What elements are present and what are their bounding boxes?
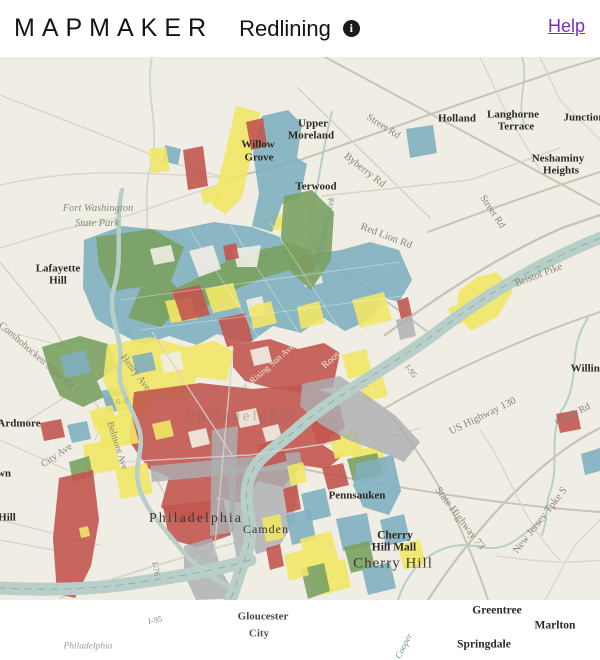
help-link[interactable]: Help [548, 16, 585, 37]
map-label: Philadelphia [63, 642, 112, 652]
map-label: Marlton [535, 620, 576, 632]
map-label: Greentree [472, 605, 521, 617]
map-label: Springdale [457, 639, 511, 651]
app-header: MAPMAKER Redlining i Help [0, 0, 600, 57]
map-label: Gloucester [238, 612, 289, 623]
map-canvas[interactable]: UpperMorelandWillowGroveTerwoodHollandLa… [0, 57, 600, 600]
map-label: I-95 [147, 615, 162, 626]
map-label: City [249, 629, 269, 640]
app-logo: MAPMAKER [14, 14, 213, 43]
redlining-map[interactable] [0, 57, 600, 600]
page-title: Redlining [239, 16, 331, 42]
info-icon[interactable]: i [343, 20, 360, 37]
map-label: Cooper [394, 632, 415, 660]
